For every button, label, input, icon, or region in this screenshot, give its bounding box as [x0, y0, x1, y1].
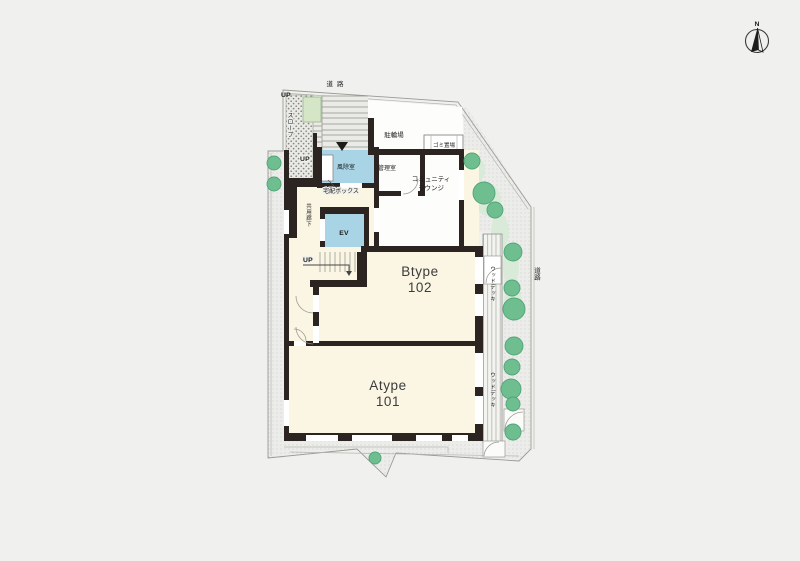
unit-b-type-label: Btype	[401, 264, 439, 279]
bicycle-parking-label: 駐輪場	[384, 130, 404, 139]
tree	[473, 182, 495, 204]
delivery-box-label: 宅配ボックス	[323, 187, 359, 195]
floor-plan-canvas: 道路 道路 UP スロープ UP 駐輪場 ゴミ置場 風除室 管理室 宅配ボックス…	[0, 0, 800, 561]
tree	[369, 452, 381, 464]
garbage-area-label: ゴミ置場	[433, 141, 456, 149]
wood-deck-upper-label: ウッドデッキ	[489, 266, 496, 302]
manager-room-label: 管理室	[378, 164, 396, 172]
slope-label: スロープ	[286, 112, 293, 138]
tree	[464, 153, 480, 169]
up-label-slope-mid: UP	[300, 156, 310, 163]
planter-box	[303, 97, 321, 122]
tree	[506, 397, 520, 411]
floor-plan-page: 道路 道路 UP スロープ UP 駐輪場 ゴミ置場 風除室 管理室 宅配ボックス…	[0, 0, 800, 561]
wood-deck-lower-label: ウッドデッキ	[489, 372, 496, 408]
up-label-stair: UP	[303, 257, 313, 264]
tree	[504, 359, 520, 375]
unit-a-type-label: Atype	[369, 378, 407, 393]
windbreak-room-label: 風除室	[337, 163, 355, 171]
tree	[503, 298, 525, 320]
elevator-label: EV	[339, 230, 349, 237]
up-label-slope-top: UP	[281, 92, 291, 99]
tree	[487, 202, 503, 218]
tree	[505, 424, 521, 440]
community-lounge-label-line2: ラウンジ	[418, 184, 445, 192]
tree	[504, 280, 520, 296]
road-label-top: 道路	[327, 79, 348, 88]
tree	[505, 337, 523, 355]
tree	[267, 177, 281, 191]
community-lounge-label-line1: コミュニティ	[412, 175, 451, 183]
tree	[267, 156, 281, 170]
tree	[504, 243, 522, 261]
unit-a-number: 101	[376, 394, 400, 409]
white-rooms	[368, 100, 464, 246]
tree	[501, 379, 521, 399]
compass-north-label: N	[754, 21, 759, 28]
unit-b-number: 102	[408, 280, 432, 295]
common-corridor-label: 共用廊下	[305, 202, 312, 228]
